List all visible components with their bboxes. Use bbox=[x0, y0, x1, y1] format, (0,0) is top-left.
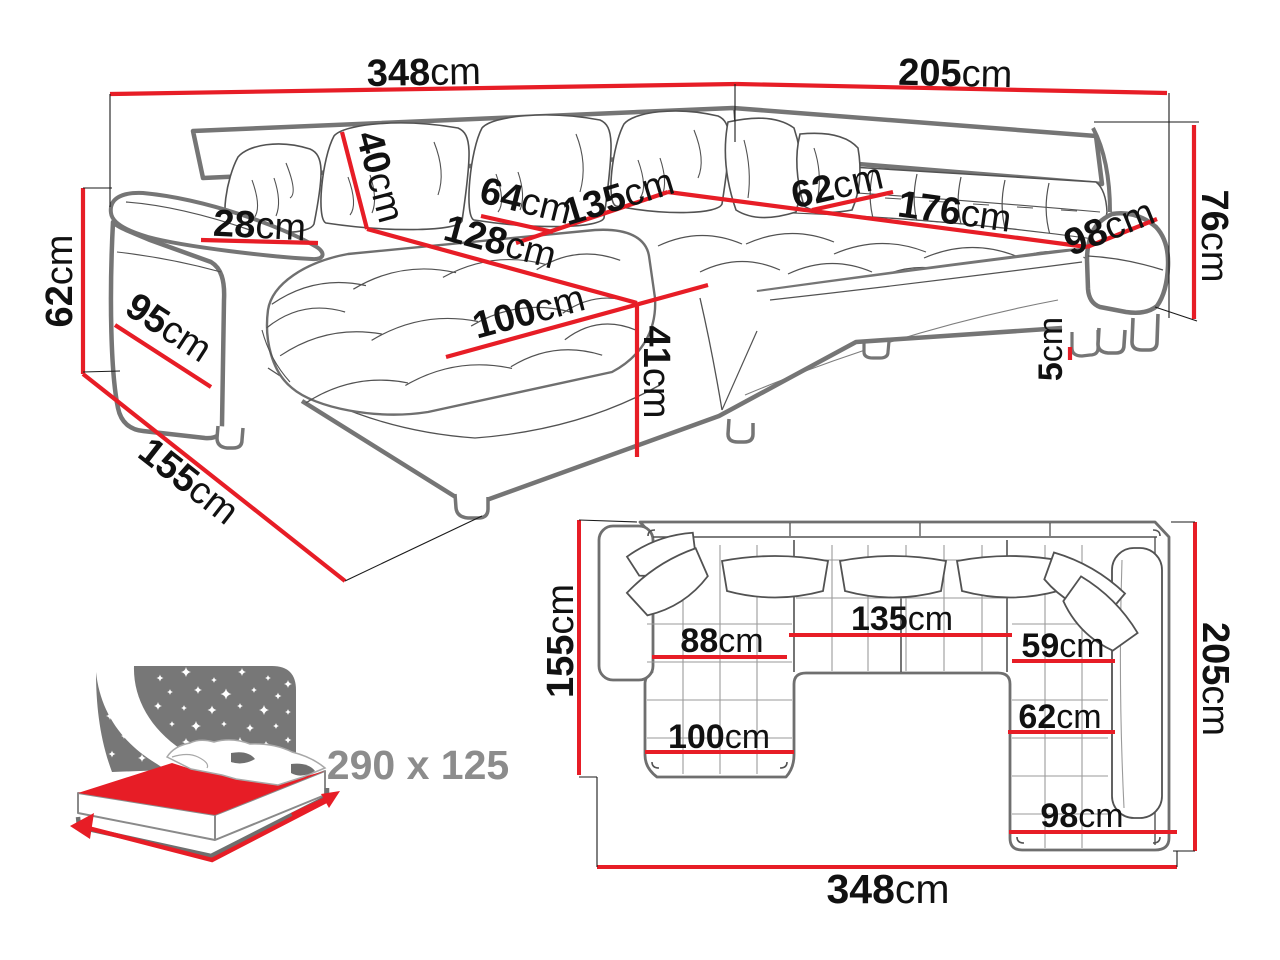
svg-text:135cm: 135cm bbox=[851, 600, 953, 638]
svg-text:205cm: 205cm bbox=[898, 52, 1013, 96]
svg-text:62cm: 62cm bbox=[1018, 698, 1101, 736]
svg-text:5cm: 5cm bbox=[1032, 317, 1070, 381]
svg-text:100cm: 100cm bbox=[668, 718, 770, 756]
svg-text:348cm: 348cm bbox=[366, 51, 481, 95]
svg-text:205cm: 205cm bbox=[1194, 622, 1236, 736]
svg-text:41cm: 41cm bbox=[635, 326, 677, 419]
svg-text:88cm: 88cm bbox=[680, 622, 763, 660]
svg-text:98cm: 98cm bbox=[1040, 797, 1123, 835]
svg-text:76cm: 76cm bbox=[1193, 190, 1235, 283]
svg-text:290 x 125: 290 x 125 bbox=[327, 742, 509, 788]
svg-text:348cm: 348cm bbox=[826, 866, 949, 912]
svg-text:28cm: 28cm bbox=[212, 203, 307, 250]
svg-text:59cm: 59cm bbox=[1021, 627, 1104, 665]
svg-text:155cm: 155cm bbox=[540, 584, 582, 698]
svg-text:62cm: 62cm bbox=[39, 235, 81, 328]
